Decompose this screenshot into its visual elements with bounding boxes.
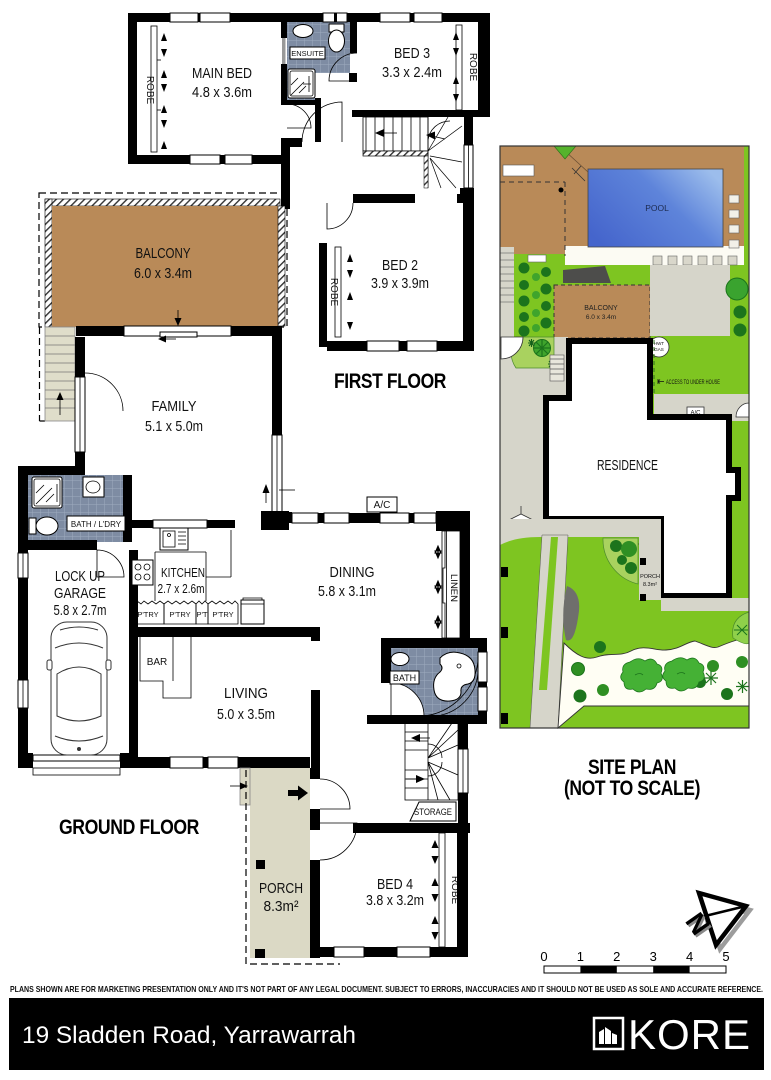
svg-text:4.8 x 3.6m: 4.8 x 3.6m (192, 84, 252, 101)
svg-text:A/C: A/C (374, 500, 391, 511)
svg-text:5.1 x 5.0m: 5.1 x 5.0m (145, 418, 203, 435)
svg-text:GROUND FLOOR: GROUND FLOOR (59, 816, 199, 839)
svg-text:(NOT TO SCALE): (NOT TO SCALE) (564, 777, 700, 800)
svg-text:0: 0 (540, 949, 547, 964)
svg-text:3.9 x 3.9m: 3.9 x 3.9m (371, 275, 429, 292)
svg-text:BED 3: BED 3 (394, 45, 430, 62)
svg-text:PORCH: PORCH (640, 574, 660, 580)
svg-text:DINING: DINING (330, 564, 375, 581)
svg-text:KITCHEN: KITCHEN (161, 565, 205, 580)
svg-text:8.3m²: 8.3m² (643, 582, 657, 588)
svg-text:FIRST FLOOR: FIRST FLOOR (334, 370, 446, 393)
svg-text:2: 2 (613, 949, 620, 964)
svg-text:GAS: GAS (654, 347, 664, 352)
svg-text:ENSUITE: ENSUITE (291, 49, 324, 58)
svg-text:LIVING: LIVING (224, 685, 268, 702)
svg-text:BED 4: BED 4 (377, 876, 413, 893)
svg-text:PLANS SHOWN ARE FOR MARKETING: PLANS SHOWN ARE FOR MARKETING PRESENTATI… (10, 984, 763, 994)
svg-text:3.3 x 2.4m: 3.3 x 2.4m (382, 64, 442, 81)
svg-text:PORCH: PORCH (259, 880, 303, 897)
svg-text:19 Sladden Road, Yarrawarrah: 19 Sladden Road, Yarrawarrah (22, 1022, 356, 1049)
svg-text:5: 5 (722, 949, 729, 964)
svg-text:5.0 x 3.5m: 5.0 x 3.5m (217, 706, 275, 723)
svg-text:ROBE: ROBE (144, 76, 155, 105)
svg-text:ROBE: ROBE (467, 53, 478, 82)
svg-text:POOL: POOL (645, 203, 669, 213)
svg-text:P'TRY: P'TRY (137, 610, 158, 619)
svg-text:KORE: KORE (628, 1011, 751, 1058)
svg-text:BALCONY: BALCONY (136, 245, 191, 262)
svg-text:P'TRY: P'TRY (169, 610, 190, 619)
svg-text:5.8 x 3.1m: 5.8 x 3.1m (318, 583, 376, 600)
svg-text:LOCK UP: LOCK UP (55, 568, 105, 585)
svg-text:1: 1 (577, 949, 584, 964)
svg-text:4: 4 (686, 949, 693, 964)
svg-text:SITE PLAN: SITE PLAN (588, 756, 676, 779)
svg-text:GARAGE: GARAGE (54, 585, 106, 602)
svg-text:3.8 x 3.2m: 3.8 x 3.2m (366, 892, 424, 909)
svg-text:BED 2: BED 2 (382, 257, 418, 274)
svg-text:RESIDENCE: RESIDENCE (597, 458, 658, 474)
svg-text:2.7 x 2.6m: 2.7 x 2.6m (158, 581, 205, 596)
svg-text:3: 3 (650, 949, 657, 964)
svg-text:5.8 x 2.7m: 5.8 x 2.7m (54, 602, 107, 619)
svg-text:BAR: BAR (147, 657, 168, 668)
svg-text:HWT: HWT (654, 341, 664, 346)
svg-text:8.3m²: 8.3m² (264, 898, 299, 915)
svg-text:P'TRY: P'TRY (212, 610, 233, 619)
svg-text:BATH / L'DRY: BATH / L'DRY (71, 520, 122, 529)
svg-text:STORAGE: STORAGE (414, 807, 452, 818)
svg-text:MAIN BED: MAIN BED (192, 65, 252, 82)
svg-text:LINEN: LINEN (448, 574, 459, 602)
svg-text:FAMILY: FAMILY (152, 398, 197, 415)
svg-text:6.0 x 3.4m: 6.0 x 3.4m (134, 265, 192, 282)
svg-text:6.0 x 3.4m: 6.0 x 3.4m (586, 314, 616, 321)
svg-text:ROBE: ROBE (328, 278, 339, 307)
svg-text:P'T: P'T (196, 610, 207, 619)
svg-text:BATH: BATH (393, 673, 416, 683)
svg-text:BALCONY: BALCONY (584, 305, 618, 312)
svg-text:ACCESS TO UNDER HOUSE: ACCESS TO UNDER HOUSE (666, 379, 720, 386)
